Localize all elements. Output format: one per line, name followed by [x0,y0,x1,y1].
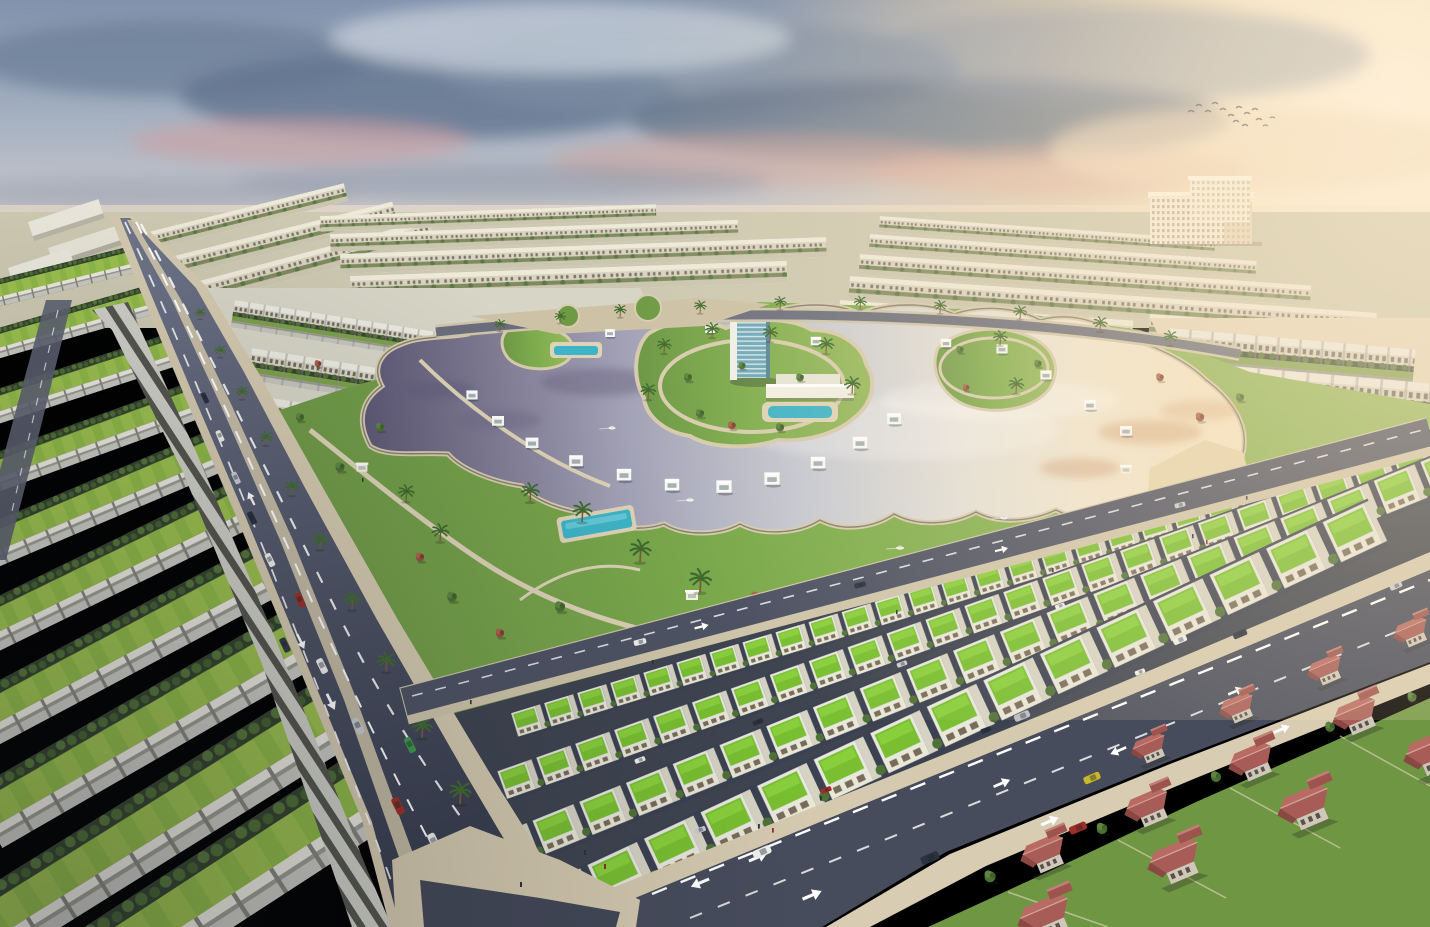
island-tower [730,317,772,380]
east-island [935,329,1055,410]
central-island [636,317,872,446]
aerial-render-image [0,0,1430,927]
island-pool [768,406,832,418]
west-island-pool [554,346,598,355]
